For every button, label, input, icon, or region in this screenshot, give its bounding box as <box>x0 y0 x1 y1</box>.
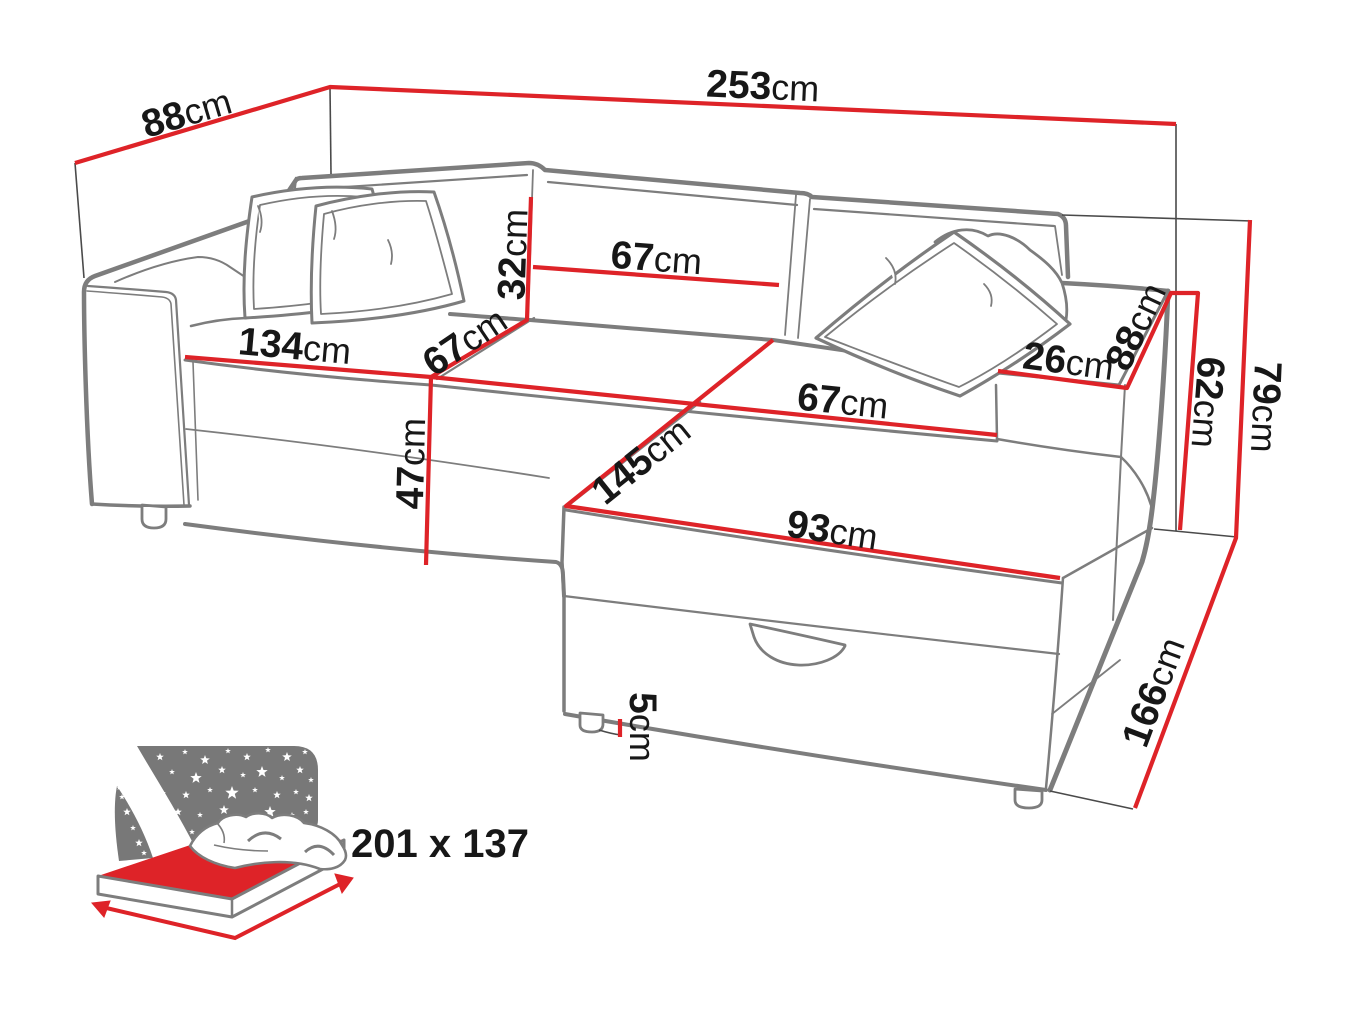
svg-text:62cm: 62cm <box>1183 355 1233 449</box>
svg-text:79cm: 79cm <box>1242 360 1289 453</box>
svg-text:253cm: 253cm <box>705 63 820 111</box>
svg-text:5cm: 5cm <box>621 692 664 762</box>
svg-text:47cm: 47cm <box>389 417 434 509</box>
svg-text:201 x 137: 201 x 137 <box>351 822 529 866</box>
svg-text:67cm: 67cm <box>609 234 703 284</box>
svg-text:32cm: 32cm <box>490 208 536 301</box>
